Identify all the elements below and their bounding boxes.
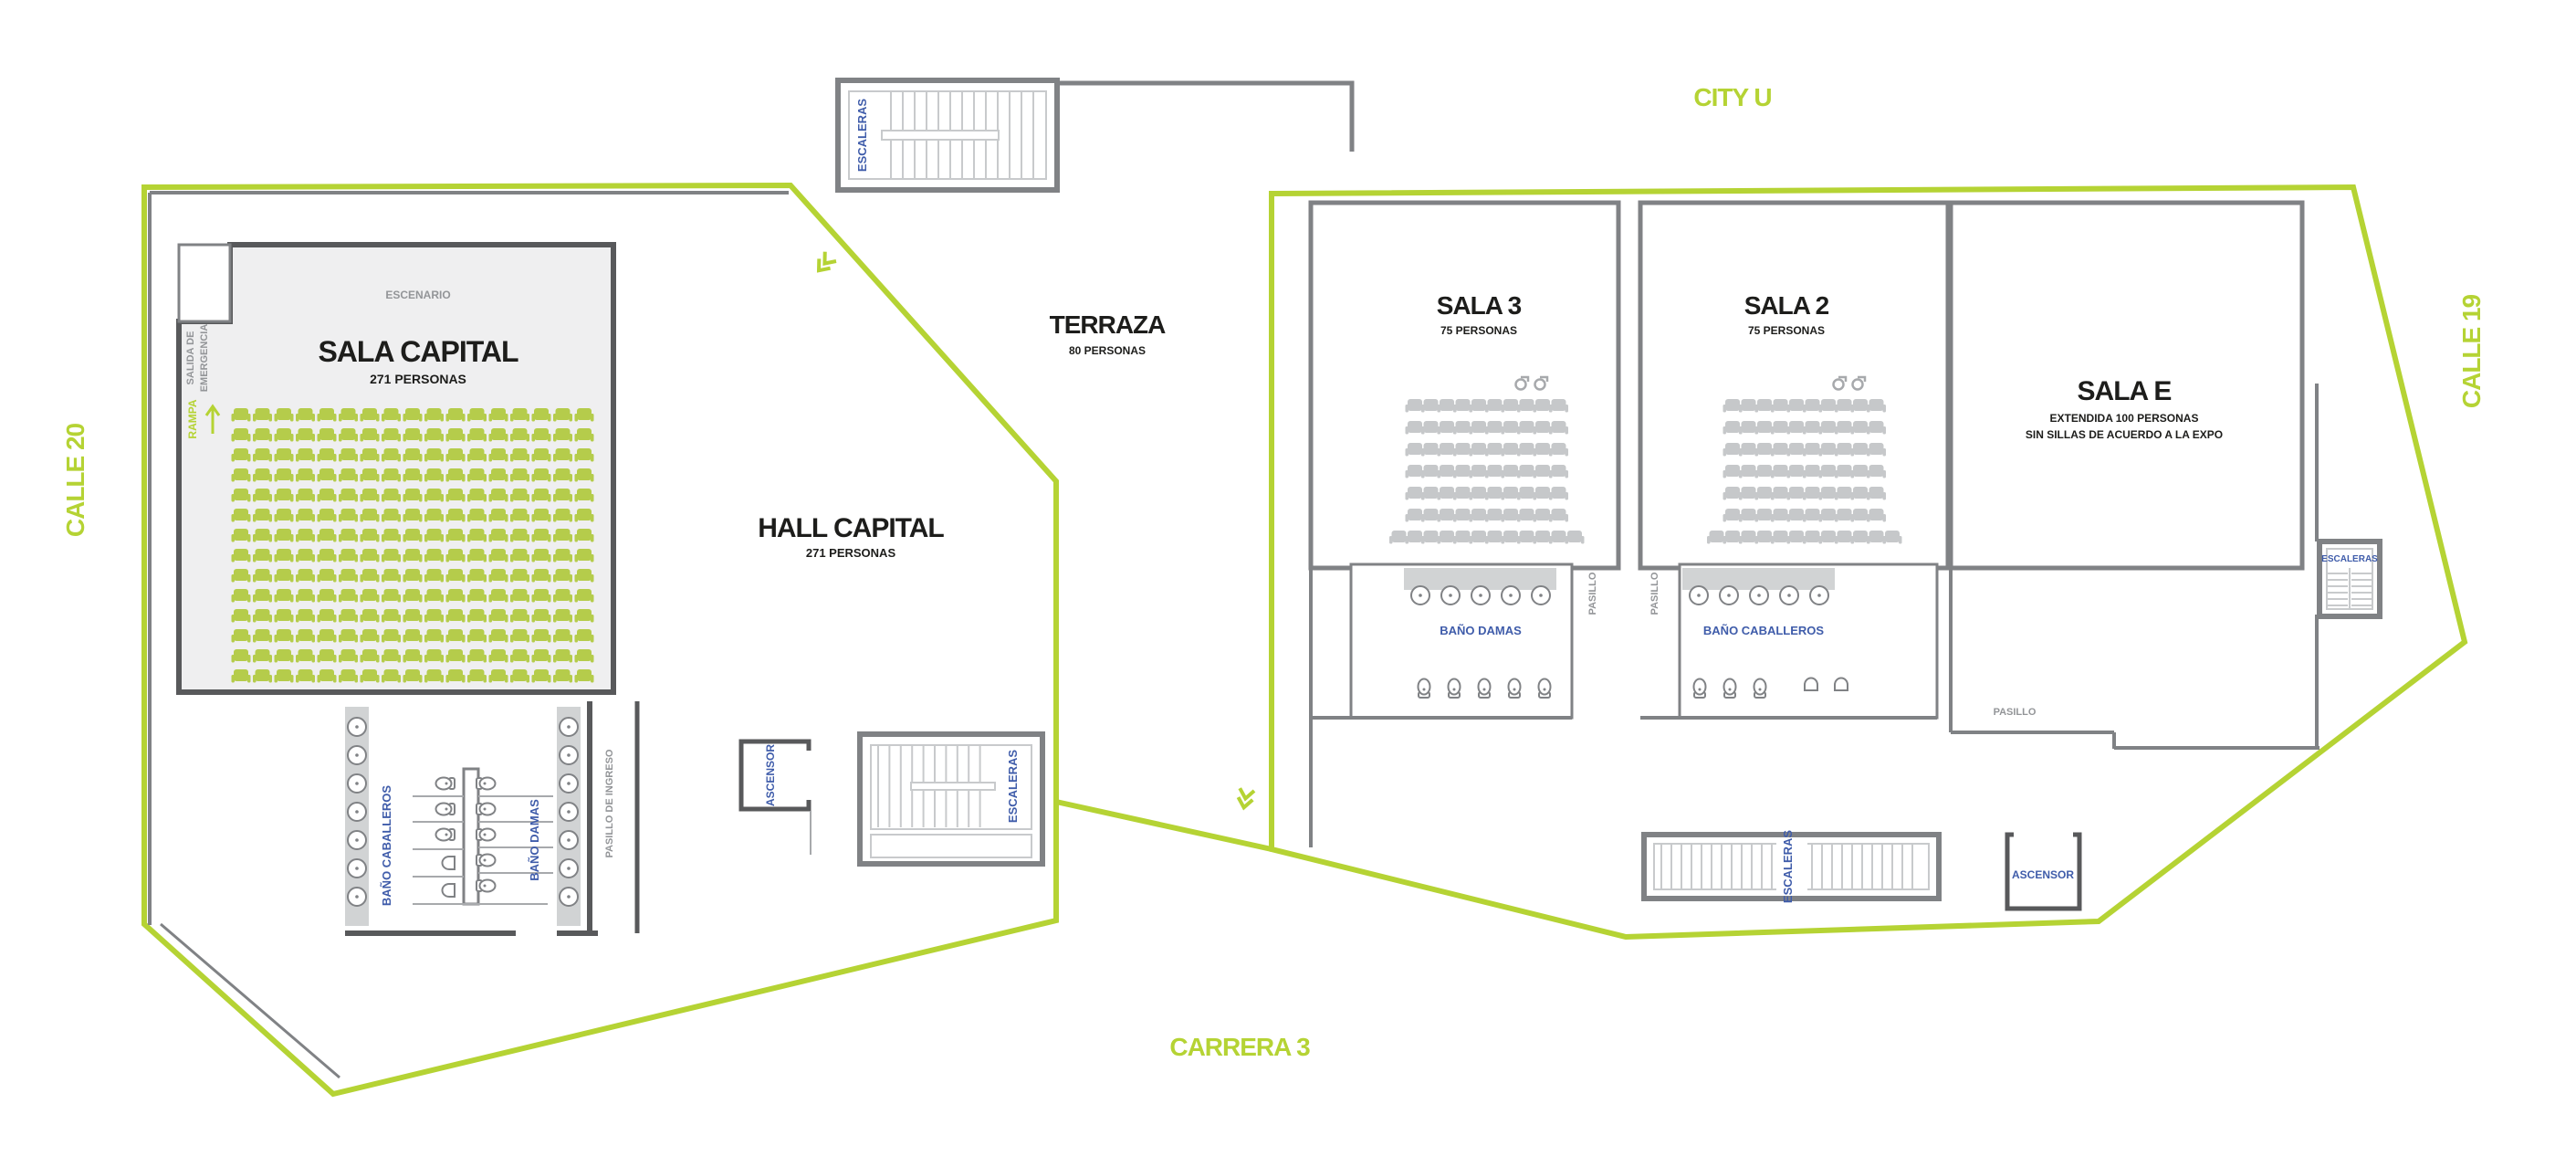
top-corridor-wall — [1057, 83, 1352, 152]
boundary-connector — [1056, 802, 1272, 849]
emergency-exit-vestibule — [179, 245, 230, 321]
sala-capital-capacity: 271 PERSONAS — [370, 372, 466, 386]
elevator-label: ASCENSOR — [2012, 868, 2074, 881]
sala2-title: SALA 2 — [1744, 291, 1829, 320]
damas-bathroom: BAÑO DAMAS — [1351, 564, 1572, 718]
hall-capital-capacity: 271 PERSONAS — [806, 546, 896, 560]
terraza-capacity: 80 PERSONAS — [1069, 344, 1146, 357]
capital-bathrooms: BAÑO CABALLEROS BAÑO DAMAS PASILLO DE IN… — [345, 701, 637, 933]
sala-capital-title: SALA CAPITAL — [318, 335, 518, 368]
bath-men-label: BAÑO CABALLEROS — [380, 785, 393, 906]
sala2-capacity: 75 PERSONAS — [1748, 324, 1825, 337]
hallway-label: PASILLO — [1649, 572, 1660, 615]
floor-plan: ESCENARIO SALA CAPITAL 271 PERSONAS SALI… — [0, 0, 2576, 1167]
left-building: ESCENARIO SALA CAPITAL 271 PERSONAS SALI… — [150, 193, 1042, 1078]
stairs-label: ESCALERAS — [2321, 554, 2378, 564]
top-stairs: ESCALERAS — [838, 80, 1352, 190]
caballeros-bathroom: BAÑO CABALLEROS — [1680, 564, 1937, 718]
salaE-capacity-2: SIN SILLAS DE ACUERDO A LA EXPO — [2026, 428, 2223, 441]
hall-stairs: ESCALERAS — [860, 734, 1042, 864]
stairs-label: ESCALERAS — [1781, 830, 1795, 904]
sala3-title: SALA 3 — [1437, 291, 1522, 320]
entrance-chevron-icon — [813, 252, 836, 276]
terraza: TERRAZA 80 PERSONAS — [1050, 310, 1167, 357]
stairs-label: ESCALERAS — [1006, 750, 1020, 824]
elevator-label: ASCENSOR — [764, 744, 777, 806]
street-calle19: CALLE 19 — [2457, 294, 2486, 408]
hallway-label: PASILLO — [1994, 707, 2037, 718]
bath-men-label: BAÑO CABALLEROS — [1703, 624, 1824, 637]
escenario-label: ESCENARIO — [385, 289, 450, 301]
bath-women-label: BAÑO DAMAS — [528, 799, 541, 881]
salaE-capacity-1: EXTENDIDA 100 PERSONAS — [2050, 412, 2199, 425]
entry-hall-label: PASILLO DE INGRESO — [604, 749, 615, 857]
bath-women-label: BAÑO DAMAS — [1440, 624, 1522, 637]
bottom-stairs: ESCALERAS — [1644, 830, 1939, 904]
salaE-title: SALA E — [2078, 376, 2172, 406]
street-city-u: CITY U — [1693, 83, 1771, 111]
sala3-capacity: 75 PERSONAS — [1440, 324, 1517, 337]
hall-capital-title: HALL CAPITAL — [758, 513, 944, 543]
street-carrera3: CARRERA 3 — [1169, 1033, 1310, 1061]
emergency-exit-label: SALIDA DE — [185, 331, 196, 385]
emergency-exit-label: EMERGENCIA — [199, 324, 210, 393]
stairs-label: ESCALERAS — [855, 99, 869, 173]
hallway-label: PASILLO — [1587, 572, 1598, 615]
right-building: SALA 3 75 PERSONAS SALA 2 75 PERSONAS SA… — [1311, 203, 2380, 909]
right-elevator: ASCENSOR — [2007, 835, 2079, 909]
entrance-chevron-icon — [1237, 788, 1254, 808]
salaE-stairs: ESCALERAS — [2319, 541, 2380, 616]
ramp-label: RAMPA — [186, 399, 199, 438]
hall-elevator: ASCENSOR — [741, 741, 811, 855]
street-calle20: CALLE 20 — [61, 423, 89, 537]
terraza-title: TERRAZA — [1050, 310, 1167, 339]
